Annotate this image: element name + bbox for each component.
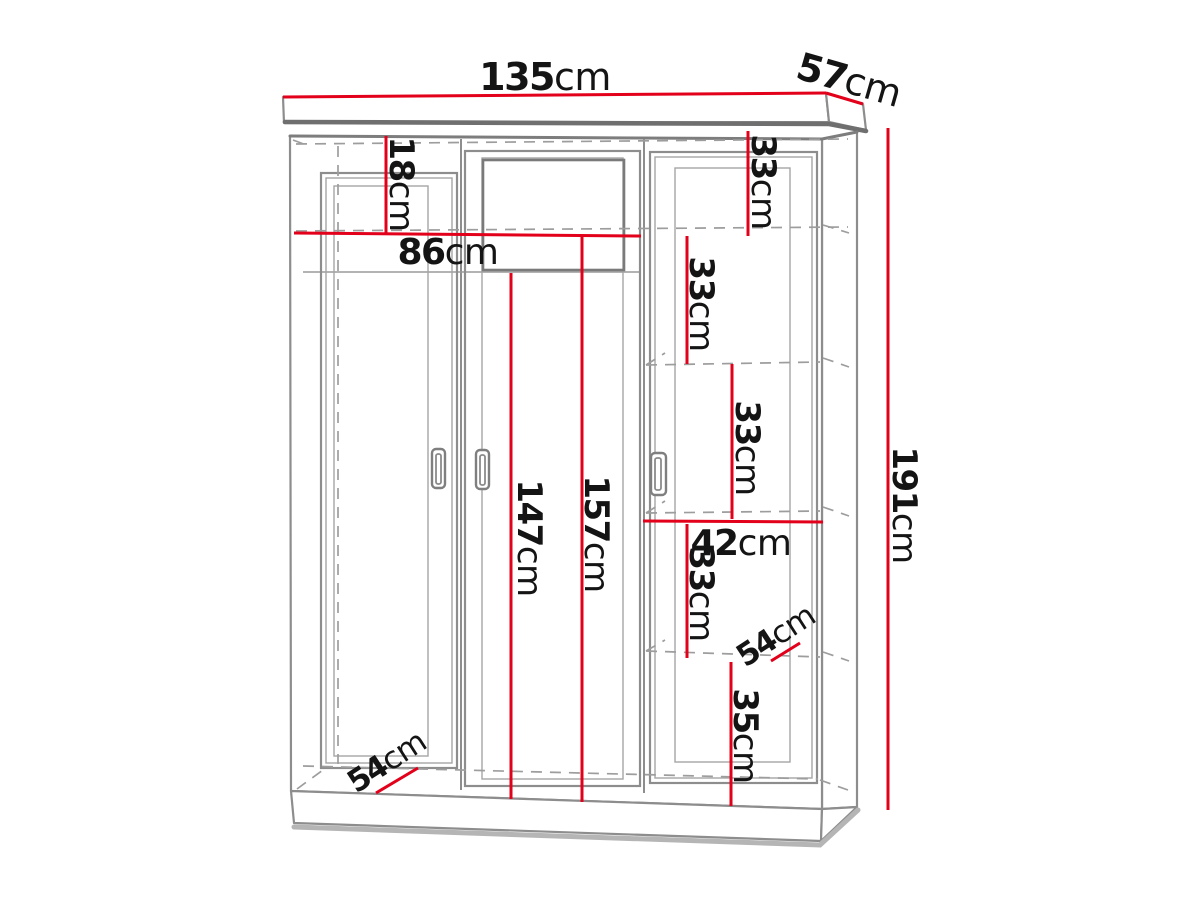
dimension-top-section-height: 18cm [381,136,421,234]
dimension-label-left-door-height: 147cm [509,479,549,596]
door-handle-left [432,449,445,488]
dimension-label-shelf-space-1: 33cm [743,134,783,229]
dimension-label-shelf-space-3: 33cm [727,400,767,495]
dimension-overall-height: 191cm [884,128,924,810]
dimension-label-shelf-space-4: 33cm [681,546,721,641]
dimension-overall-width: 135cm [283,55,826,99]
wardrobe-diagram-canvas: 135cm57cm18cm86cm147cm157cm33cm33cm33cm4… [0,0,1200,900]
dimension-label-middle-door-height: 157cm [576,475,616,592]
cornice-bottom-edge [285,122,866,131]
dimension-shelf-space-1: 33cm [743,131,783,236]
wardrobe-dimension-diagram: 135cm57cm18cm86cm147cm157cm33cm33cm33cm4… [0,0,1200,900]
door-handle-middle [476,450,489,489]
side-panel [822,132,857,809]
dimension-label-overall-height: 191cm [884,446,924,563]
door-handle-right [651,453,666,495]
dimension-label-shelf-space-2: 33cm [681,256,721,351]
dimension-label-bottom-section-height: 35cm [725,688,765,783]
dimension-label-top-section-height: 18cm [381,136,421,231]
dimension-label-inner-width: 86cm [398,232,499,273]
dimension-label-overall-width: 135cm [479,55,611,99]
